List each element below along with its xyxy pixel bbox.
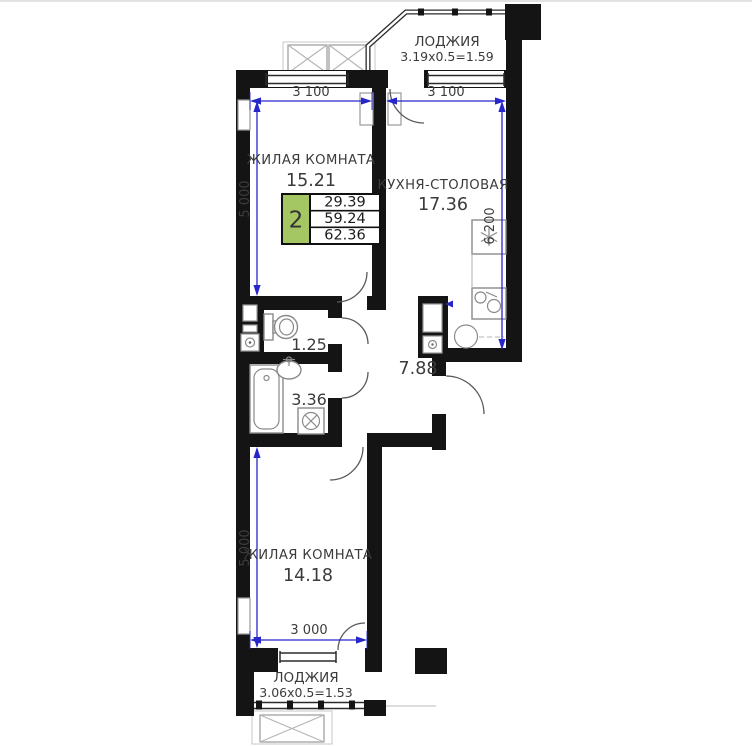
wc-door-arc [342,318,368,344]
dimension-label: 5 000 [238,180,253,217]
radiator [388,93,401,125]
living2-area: 14.18 [283,566,333,586]
wall-segment [328,344,342,372]
apartment-info-table: 2 29.39 59.24 62.36 [282,194,380,244]
wall-segment [364,700,386,716]
loggia-top-label: ЛОДЖИЯ [414,34,479,50]
living-area-value: 29.39 [324,195,366,211]
living1-label: ЖИЛАЯ КОМНАТА [247,153,376,168]
bottom-loggia-railing [252,701,436,710]
total-area-value: 62.36 [324,228,366,244]
kitchen-label: КУХНЯ-СТОЛОВАЯ [377,178,508,193]
dimension-living1-width: 3 100 [250,85,372,110]
window-living2 [280,651,336,663]
wall-segment [365,648,382,672]
wc-area: 1.25 [291,335,327,354]
wall-segment [328,398,342,447]
wall-segment [236,648,278,672]
dimension-label: 3 000 [290,623,327,638]
ac-unit-icon [252,711,332,744]
floor-plan-svg: 3 100 3 100 5 000 6 200 5 000 3 000 ЛОДЖ… [0,0,752,746]
dimension-label: 6 200 [483,207,498,244]
loggia-bottom-door-arc [338,623,365,650]
wall-segment [506,38,522,358]
dimension-label: 3 100 [427,85,464,100]
loggia-top-size: 3.19х0.5=1.59 [400,49,493,64]
wall-segment [367,296,386,310]
wall-segment [328,296,342,318]
utility-shaft-contents [241,305,259,351]
washing-machine-icon [298,408,324,434]
floor-plan: 3 100 3 100 5 000 6 200 5 000 3 000 ЛОДЖ… [0,0,752,746]
loggia-bottom-label: ЛОДЖИЯ [273,670,338,686]
wall-segment [415,648,447,674]
vent-shaft-contents [423,304,442,353]
bathroom-door-arc [342,372,368,398]
living2-door-arc [330,447,363,480]
ac-unit-icon [329,45,367,73]
ac-unit-icon [288,45,327,73]
radiator [238,598,250,634]
kitchen-area: 17.36 [418,195,468,215]
bathtub-icon [250,365,283,433]
stove-icon [455,325,505,348]
living1-area: 15.21 [286,171,336,191]
utility-meter-icon [423,336,442,353]
loggia-bottom-size: 3.06х0.5=1.53 [259,685,352,700]
entry-door-arc [446,376,484,414]
living2-label: ЖИЛАЯ КОМНАТА [244,548,373,563]
hall-area: 7.88 [399,359,438,379]
wall-segment [236,433,330,447]
radiator [238,100,250,130]
wall-segment [440,348,522,362]
dimension-living2-width: 3 000 [250,623,367,649]
utility-meter-icon [241,334,259,351]
kitchen-sink-icon [472,288,506,319]
apartment-area-value: 59.24 [324,211,366,227]
rooms-count: 2 [289,208,304,234]
dimension-label: 3 100 [292,85,329,100]
wall-segment [505,4,541,40]
bathroom-area: 3.36 [291,390,327,409]
